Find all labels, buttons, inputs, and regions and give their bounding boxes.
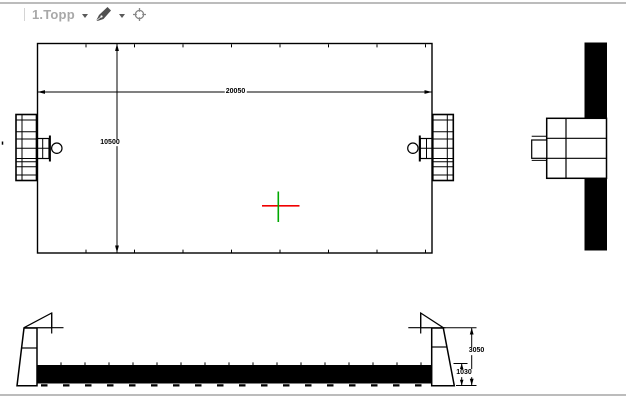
- view-toolbar: 1.Topp: [24, 3, 147, 25]
- side-view-bracket: [547, 118, 607, 178]
- dim-arrow-left: [38, 90, 46, 94]
- right-roller-assembly: [408, 115, 454, 181]
- pen-icon: [95, 6, 112, 22]
- left-roller-assembly: [3, 115, 63, 181]
- toolbar-separator: [24, 8, 25, 21]
- front-view-belt-bar: [37, 365, 432, 384]
- top-view-outline: [38, 44, 433, 254]
- view-selector-label: 1.Topp: [32, 8, 75, 21]
- dim-arrow: [470, 328, 474, 335]
- chevron-down-icon[interactable]: [82, 14, 88, 18]
- dim-arrow-top: [115, 44, 119, 52]
- chevron-down-icon[interactable]: [119, 14, 125, 18]
- cad-viewport: 1.Topp: [0, 0, 626, 402]
- top-view-dimensions: [38, 44, 433, 254]
- dimension-label-top-width: 20050: [224, 88, 246, 96]
- dimension-label-top-height: 10500: [99, 139, 121, 147]
- dim-arrow: [470, 379, 474, 386]
- side-view: [532, 43, 607, 250]
- origin-crosshair: [262, 192, 300, 223]
- front-view: [17, 313, 454, 386]
- dim-arrow: [460, 380, 464, 386]
- dimension-label-front-height: 3050: [467, 347, 486, 355]
- dimension-label-front-lower: 1030: [455, 369, 474, 377]
- origin-snap-button[interactable]: [132, 7, 147, 22]
- view-selector[interactable]: 1.Topp: [32, 8, 75, 21]
- pen-style-button[interactable]: [95, 6, 112, 22]
- crosshair-target-icon: [132, 7, 147, 22]
- dim-arrow-bottom: [115, 246, 119, 254]
- drawing-canvas[interactable]: [0, 0, 626, 402]
- dim-arrow-right: [425, 90, 433, 94]
- side-view-shaft-end: [532, 140, 547, 158]
